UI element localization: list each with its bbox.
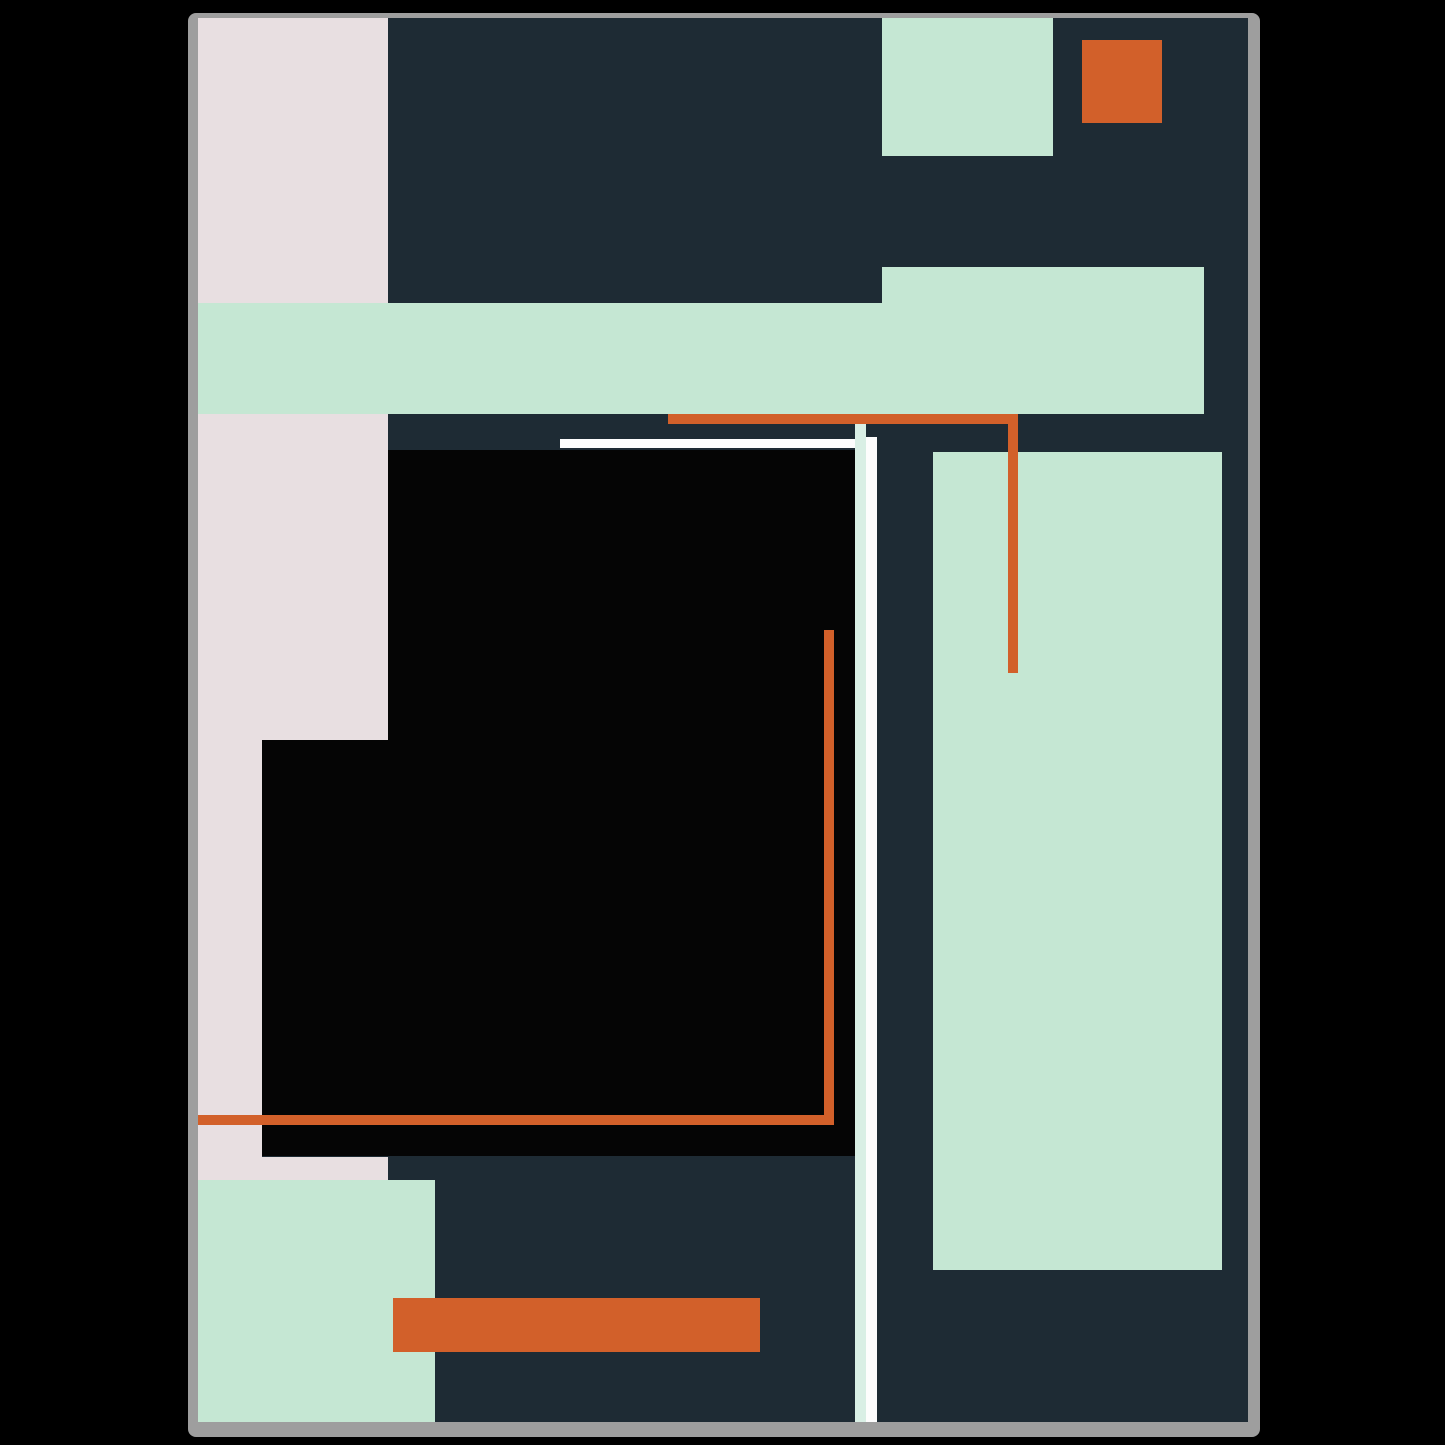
white-vertical-line (866, 437, 877, 1422)
screenshot-canvas (0, 0, 1445, 1445)
orange-right-drop-line (1008, 414, 1018, 673)
mint-band-right-step (882, 267, 1204, 303)
poster-artwork (198, 18, 1248, 1422)
bottom-orange-bar (393, 1298, 760, 1352)
pink-column-top (198, 18, 388, 303)
right-mint-rect (933, 452, 1222, 1270)
orange-top-line (668, 414, 1018, 424)
pink-column-narrow (198, 740, 262, 1157)
top-orange-square (1082, 40, 1162, 123)
mint-band-main (198, 303, 1204, 414)
black-square-lower (262, 740, 855, 1156)
pink-column-middle (198, 414, 388, 740)
orange-corner-horizontal (198, 1115, 834, 1125)
white-horizontal-line (560, 439, 877, 448)
mint-vertical-strip (855, 424, 866, 1422)
orange-corner-vertical (824, 630, 834, 1125)
top-mint-rect (882, 18, 1053, 156)
pink-strip-bottom (198, 1157, 388, 1180)
black-square-upper (388, 450, 855, 740)
